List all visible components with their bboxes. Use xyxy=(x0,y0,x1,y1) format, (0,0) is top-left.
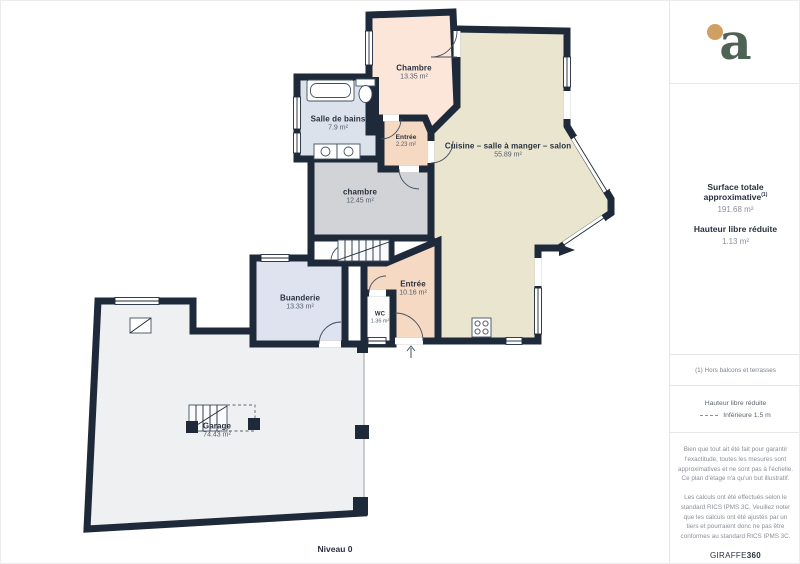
room-label-entree-main: Entrée10.16 m² xyxy=(399,280,427,297)
disclaimer-section: Bien que tout ait été fait pour garantir… xyxy=(670,433,800,564)
window xyxy=(535,288,542,334)
bathtub-icon xyxy=(307,80,354,101)
door-gap xyxy=(564,91,571,119)
level-label: Niveau 0 xyxy=(318,544,353,554)
footnote-section: (1) Hors balcons et terrasses xyxy=(670,355,800,386)
window xyxy=(564,57,571,87)
reduced-height-label: Hauteur libre réduite xyxy=(694,224,777,234)
footnote-text: (1) Hors balcons et terrasses xyxy=(695,367,776,374)
floor-plan: Chambre13.35 m² Salle de bains7.9 m² Ent… xyxy=(1,1,669,564)
window xyxy=(294,133,301,153)
legend-item-label: Inférieure 1.5 m xyxy=(723,412,771,419)
metrics-section: Surface totale approximative(1) 191.68 m… xyxy=(670,84,800,355)
surface-total-label: Surface totale approximative(1) xyxy=(676,182,795,202)
dashed-line-icon xyxy=(700,415,718,416)
room-label-wc: WC1.36 m² xyxy=(371,312,390,325)
giraffe360-brand: GIRAFFE360 xyxy=(710,551,761,560)
room-label-buanderie: Buanderie13.33 m² xyxy=(280,294,320,311)
room-label-entree-small: Entrée2.23 m² xyxy=(396,134,417,148)
room-label-chambre-top: Chambre13.35 m² xyxy=(396,64,431,81)
room-label-garage: Garage74.43 m² xyxy=(203,422,231,439)
sink-icon xyxy=(337,144,360,159)
sink-icon xyxy=(314,144,337,159)
legend-title: Hauteur libre réduite xyxy=(705,400,767,407)
window xyxy=(294,97,301,129)
water-heater-icon xyxy=(130,318,151,333)
room-label-chambre-mid: chambre12.45 m² xyxy=(343,188,377,205)
disclaimer-paragraph: Les calculs ont été effectués selon le s… xyxy=(678,493,793,542)
surface-total-value: 191.68 m² xyxy=(717,205,753,214)
brand-logo-icon: a xyxy=(719,17,751,67)
floor-plan-page: Chambre13.35 m² Salle de bains7.9 m² Ent… xyxy=(0,0,800,564)
logo-letter: a xyxy=(719,12,751,71)
window xyxy=(366,31,373,65)
floor-plan-svg xyxy=(1,1,669,564)
info-sidebar: a Surface totale approximative(1) 191.68… xyxy=(669,1,800,563)
reduced-height-value: 1.13 m² xyxy=(722,237,749,246)
room-label-cuisine: Cuisine – salle à manger – salon55.89 m² xyxy=(445,142,571,159)
window xyxy=(115,298,159,305)
logo-section: a xyxy=(670,1,800,84)
room-label-salle-de-bains: Salle de bains7.9 m² xyxy=(311,115,366,132)
window xyxy=(368,338,386,345)
room-cuisine-shape xyxy=(431,29,611,341)
door-gap xyxy=(535,258,542,286)
entrance-arrow-icon xyxy=(407,346,415,358)
legend-section: Hauteur libre réduite Inférieure 1.5 m xyxy=(670,386,800,433)
stove-icon xyxy=(472,318,491,337)
stairs-upper xyxy=(338,240,389,261)
disclaimer-paragraph: Bien que tout ait été fait pour garantir… xyxy=(678,445,793,484)
window xyxy=(506,338,522,345)
legend-row: Inférieure 1.5 m xyxy=(700,412,771,419)
window xyxy=(261,255,289,262)
footnote-marker: (1) xyxy=(761,192,767,198)
